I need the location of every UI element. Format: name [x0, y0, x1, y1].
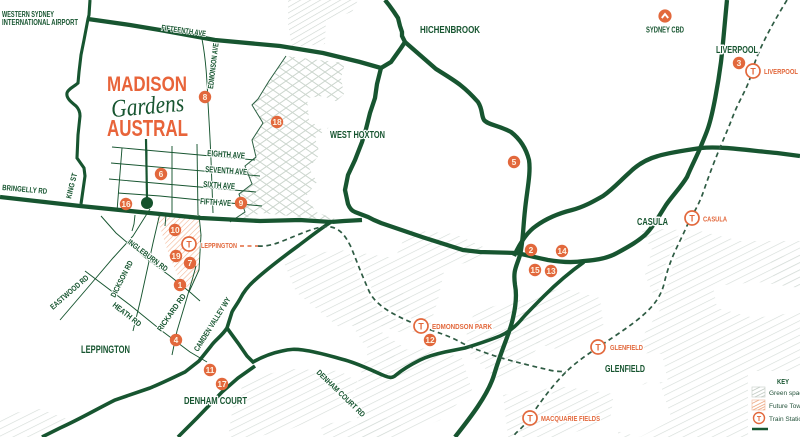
svg-text:19: 19: [171, 251, 181, 261]
svg-text:DENHAM COURT: DENHAM COURT: [184, 395, 247, 407]
svg-text:13: 13: [546, 266, 556, 276]
svg-text:14: 14: [557, 246, 567, 256]
svg-text:INTERNATIONAL AIRPORT: INTERNATIONAL AIRPORT: [2, 18, 78, 27]
svg-text:7: 7: [188, 258, 193, 268]
svg-text:Green space: Green space: [769, 390, 800, 397]
svg-text:SYDNEY CBD: SYDNEY CBD: [646, 26, 684, 35]
svg-text:WEST HOXTON: WEST HOXTON: [330, 130, 385, 141]
svg-text:8: 8: [203, 92, 208, 102]
svg-text:12: 12: [425, 335, 435, 345]
svg-text:T: T: [595, 343, 601, 353]
svg-text:KEY: KEY: [777, 379, 789, 386]
svg-text:11: 11: [206, 365, 215, 375]
svg-text:3: 3: [737, 58, 742, 68]
svg-text:T: T: [186, 240, 192, 250]
svg-text:EDMONDSON PARK: EDMONDSON PARK: [432, 324, 492, 331]
svg-text:T: T: [750, 67, 756, 77]
svg-text:Train Station: Train Station: [769, 416, 800, 423]
svg-text:T: T: [757, 416, 762, 423]
svg-text:T: T: [689, 214, 695, 224]
svg-text:HICHENBROOK: HICHENBROOK: [420, 25, 480, 36]
svg-text:MACQUARIE FIELDS: MACQUARIE FIELDS: [541, 416, 600, 423]
svg-text:LIVERPOOL: LIVERPOOL: [764, 69, 799, 76]
svg-text:LEPPINGTON: LEPPINGTON: [81, 344, 130, 356]
svg-text:GLENFIELD: GLENFIELD: [605, 364, 645, 375]
svg-text:CASULA: CASULA: [637, 217, 668, 228]
svg-text:10: 10: [170, 225, 180, 235]
svg-text:6: 6: [159, 169, 164, 179]
svg-text:GLENFIELD: GLENFIELD: [610, 345, 643, 352]
svg-text:15: 15: [530, 265, 540, 275]
svg-text:T: T: [418, 322, 424, 332]
svg-text:T: T: [527, 414, 533, 424]
svg-text:Future Town Centre: Future Town Centre: [769, 403, 800, 410]
svg-text:LIVERPOOL: LIVERPOOL: [716, 45, 758, 56]
svg-text:16: 16: [121, 199, 131, 209]
svg-text:18: 18: [272, 117, 282, 127]
svg-text:5: 5: [512, 157, 517, 167]
svg-text:LEPPINGTON: LEPPINGTON: [201, 243, 237, 250]
svg-text:9: 9: [239, 198, 244, 208]
svg-text:2: 2: [529, 245, 534, 255]
svg-text:17: 17: [217, 379, 227, 389]
svg-text:CASULA: CASULA: [703, 217, 727, 224]
svg-text:1: 1: [178, 280, 183, 290]
svg-text:4: 4: [174, 335, 179, 345]
svg-text:AUSTRAL: AUSTRAL: [107, 115, 188, 141]
